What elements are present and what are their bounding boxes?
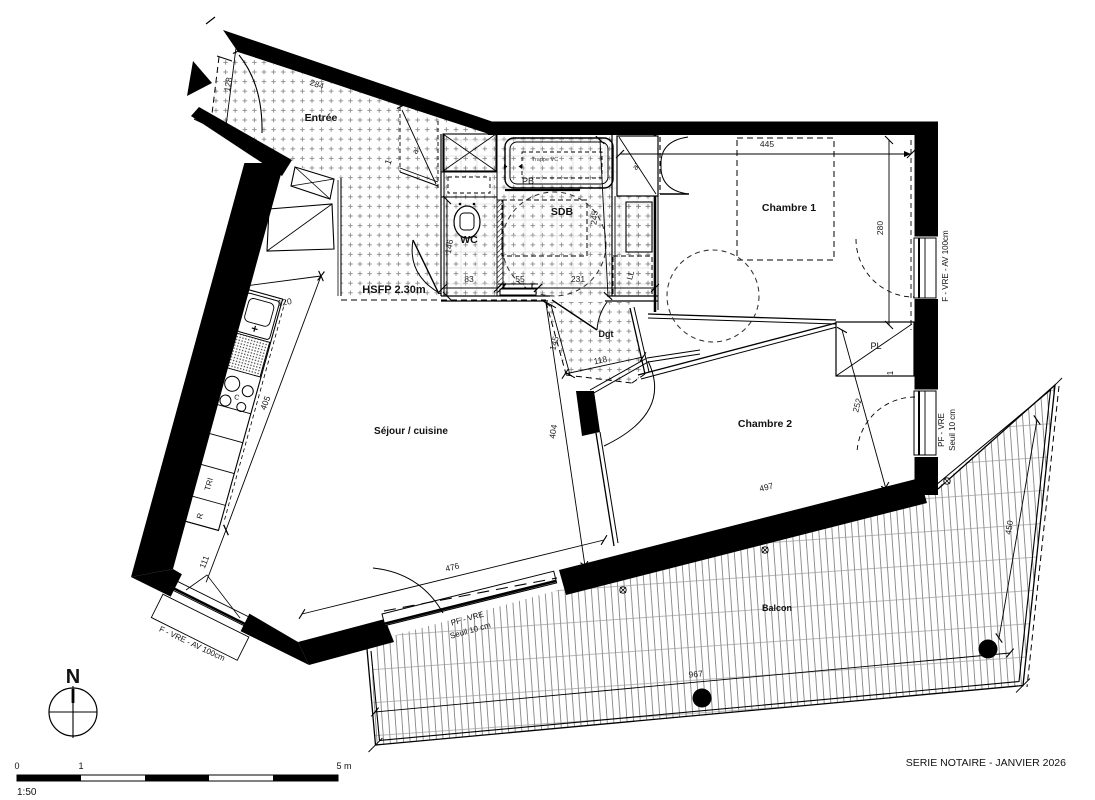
svg-text:Séjour / cuisine: Séjour / cuisine xyxy=(374,426,448,437)
svg-text:0: 0 xyxy=(14,761,19,771)
svg-text:445: 445 xyxy=(760,139,774,149)
svg-text:F - VRE - AV 100cm: F - VRE - AV 100cm xyxy=(941,230,950,302)
svg-text:967: 967 xyxy=(688,668,703,679)
svg-text:1: 1 xyxy=(78,761,83,771)
svg-text:Dgt: Dgt xyxy=(599,329,614,339)
svg-text:Chambre 2: Chambre 2 xyxy=(738,418,792,430)
svg-text:280: 280 xyxy=(875,221,885,235)
svg-text:WC: WC xyxy=(460,234,478,246)
svg-text:PF - VRE: PF - VRE xyxy=(937,413,946,447)
svg-text:PB: PB xyxy=(522,176,534,186)
svg-text:120: 120 xyxy=(277,296,293,308)
svg-text:83: 83 xyxy=(464,274,474,284)
svg-text:HSFP 2.30m: HSFP 2.30m xyxy=(362,284,426,296)
svg-text:55: 55 xyxy=(515,274,525,284)
svg-text:245: 245 xyxy=(588,210,599,225)
svg-text:PL: PL xyxy=(870,341,881,351)
svg-text:Entrée: Entrée xyxy=(305,112,338,124)
svg-text:Balcon: Balcon xyxy=(762,603,792,613)
svg-text:404: 404 xyxy=(547,424,559,440)
svg-text:231: 231 xyxy=(571,274,585,284)
svg-text:Chambre 1: Chambre 1 xyxy=(762,202,816,214)
svg-text:Trappe VC: Trappe VC xyxy=(532,157,558,163)
svg-text:SDB: SDB xyxy=(551,206,574,218)
svg-text:Seuil 10 cm: Seuil 10 cm xyxy=(948,409,957,451)
svg-text:1:50: 1:50 xyxy=(17,787,37,798)
svg-text:SERIE NOTAIRE - JANVIER 2026: SERIE NOTAIRE - JANVIER 2026 xyxy=(906,757,1066,769)
svg-text:1: 1 xyxy=(886,370,895,375)
svg-text:5 m: 5 m xyxy=(336,761,351,771)
svg-text:N: N xyxy=(66,666,80,688)
